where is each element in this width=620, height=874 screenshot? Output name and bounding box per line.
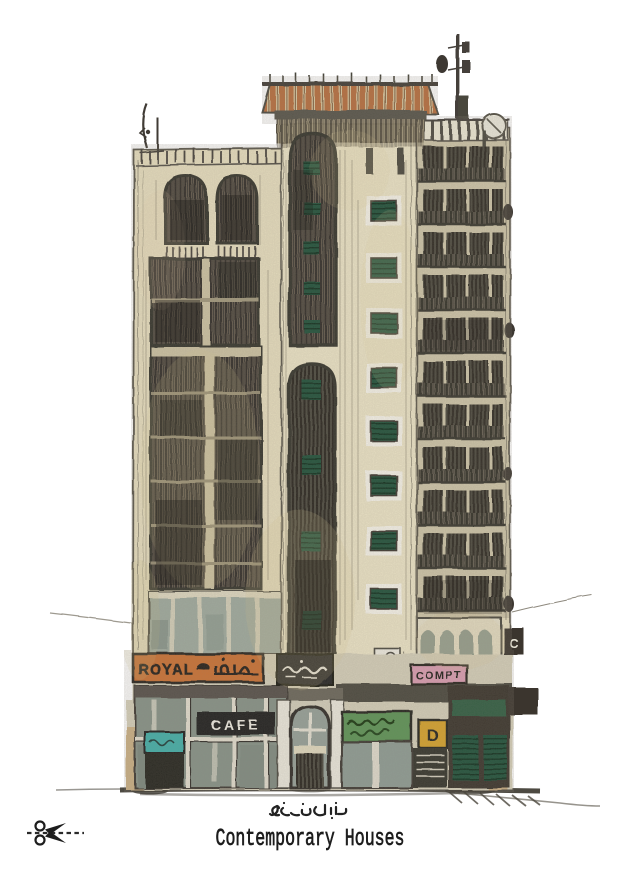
svg-text:Contemporary Houses: Contemporary Houses (216, 826, 405, 853)
